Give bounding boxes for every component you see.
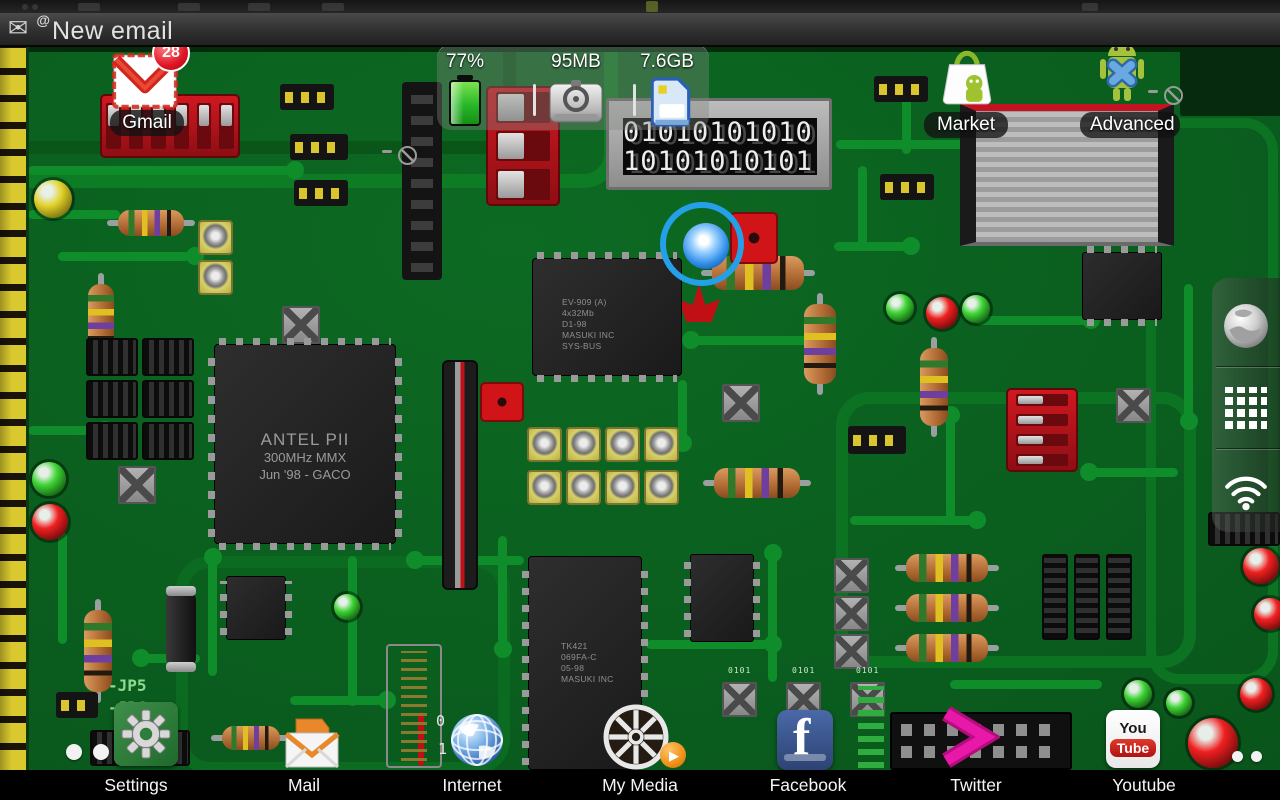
battery-percent: 77% — [437, 51, 493, 73]
led — [886, 294, 914, 322]
power-orb-widget[interactable] — [660, 202, 744, 286]
via-pad — [1180, 412, 1198, 430]
led — [32, 504, 68, 540]
led — [1243, 548, 1279, 584]
capacitor — [566, 470, 601, 505]
youtube-app-icon[interactable]: You Tube — [1106, 710, 1160, 768]
notification-text: New email — [52, 17, 173, 46]
gold-edge-connector — [0, 47, 29, 770]
dock-item-my-media[interactable]: My Media — [556, 775, 724, 796]
smd-chip — [1116, 388, 1151, 423]
status-icon — [322, 3, 344, 11]
facebook-tile: f — [777, 710, 833, 770]
dock-item-facebook[interactable]: Facebook — [724, 775, 892, 796]
switch-label-0: 0 — [436, 712, 445, 730]
finger-pads — [858, 686, 884, 768]
fuse — [166, 590, 196, 668]
circuit-trace — [1086, 468, 1178, 477]
wifi-button[interactable] — [1212, 458, 1280, 526]
facebook-underline — [784, 754, 826, 761]
browser-globe-button[interactable] — [1212, 292, 1280, 360]
youtube-you-text: You — [1119, 721, 1146, 737]
socket — [86, 338, 138, 376]
socket — [1074, 554, 1100, 640]
page-indicator-dot — [1232, 751, 1243, 762]
envelope-icon: ✉ — [8, 15, 28, 42]
silkscreen-binary: 0101 — [728, 666, 751, 675]
led — [1166, 690, 1192, 716]
wifi-icon — [1223, 472, 1269, 512]
gmail-label[interactable]: Gmail — [110, 110, 184, 136]
via-pad — [132, 649, 150, 667]
dock-label: Mail — [288, 775, 320, 795]
dock-item-settings[interactable]: Settings — [52, 775, 220, 796]
film-reel-icon — [603, 704, 669, 770]
capacitor — [605, 427, 640, 462]
separator — [533, 84, 536, 116]
jumper-block — [280, 84, 334, 110]
status-icon — [78, 3, 100, 11]
market-icon — [936, 42, 998, 108]
led — [1254, 598, 1280, 630]
via-pad — [902, 237, 920, 255]
twitter-app-icon[interactable] — [934, 706, 1000, 773]
via-pad — [406, 551, 424, 569]
led — [34, 180, 72, 218]
android-home-screen: ✉ @ New email ANTEL PII 300MHz MMX Jun '… — [0, 0, 1280, 800]
slider-component — [442, 360, 478, 590]
capacitor — [527, 427, 562, 462]
power-orb — [683, 223, 729, 269]
divider — [1216, 448, 1280, 450]
divider — [1216, 366, 1280, 368]
facebook-app-icon[interactable]: f — [777, 710, 833, 770]
circuit-trace — [678, 380, 687, 438]
dip-switch — [1006, 388, 1078, 472]
internet-app-icon[interactable] — [449, 712, 505, 773]
capacitor — [527, 470, 562, 505]
dock-label: My Media — [602, 775, 678, 795]
jumper-block — [294, 180, 348, 206]
circuit-trace — [348, 556, 357, 706]
smd-chip — [834, 634, 869, 669]
advanced-task-label[interactable]: Advanced Tas — [1080, 112, 1180, 138]
ram-chip: EV-909 (A) 4x32Mb D1-98 MASUKI INC SYS-B… — [532, 258, 682, 376]
via-pad — [764, 544, 782, 562]
led — [962, 295, 990, 323]
circuit-trace — [768, 550, 777, 682]
resistor — [920, 348, 948, 426]
dock-label: Twitter — [950, 775, 1002, 795]
at-symbol: @ — [36, 13, 50, 28]
capacitor — [566, 427, 601, 462]
mail-envelope-icon — [282, 716, 342, 770]
dock-item-twitter[interactable]: Twitter — [892, 775, 1060, 796]
switch-label-1: 1 — [438, 740, 447, 758]
circuit-trace — [208, 554, 217, 676]
dock-item-youtube[interactable]: Youtube — [1060, 775, 1228, 796]
status-icon — [178, 3, 200, 11]
memory-free: 95MB — [535, 51, 617, 73]
globe-icon — [1223, 303, 1269, 349]
dock-item-mail[interactable]: Mail — [220, 775, 388, 796]
smd-chip — [722, 384, 760, 422]
socket — [1042, 554, 1068, 640]
jumper-block — [880, 174, 934, 200]
via-pad — [286, 161, 304, 179]
storage-free: 7.6GB — [625, 51, 709, 73]
jumper-block — [848, 426, 906, 454]
new-email-icon: ✉ @ — [8, 15, 48, 45]
resistor — [906, 554, 988, 582]
resistor — [804, 304, 836, 384]
page-indicator-dot — [93, 744, 109, 760]
socket — [86, 380, 138, 418]
top-system-strip — [0, 0, 1280, 13]
ram-chip-text: EV-909 (A) 4x32Mb D1-98 MASUKI INC SYS-B… — [562, 297, 615, 352]
via-pad — [764, 635, 782, 653]
status-icon — [1082, 3, 1098, 11]
battery-icon — [449, 80, 481, 126]
via-pad — [494, 640, 512, 658]
market-app-icon[interactable] — [936, 42, 998, 113]
silkscreen-binary: 0101 — [856, 666, 879, 675]
jumper-block — [290, 134, 348, 160]
circuit-trace — [58, 252, 190, 261]
circuit-trace — [946, 412, 955, 524]
silkscreen-binary: 0101 — [792, 666, 815, 675]
dock-label: Youtube — [1112, 775, 1176, 795]
circuit-trace — [28, 166, 290, 175]
jumper-block — [56, 692, 98, 718]
circuit-trace — [58, 532, 67, 644]
via-pad — [204, 548, 222, 566]
tk421-chip-text: TK421 069FA-C 05-98 MASUKI INC — [561, 641, 614, 685]
circuit-trace — [290, 696, 382, 705]
status-icon — [32, 4, 38, 10]
capacitor — [198, 220, 233, 255]
page-indicator-dot — [66, 744, 82, 760]
notification-bar[interactable]: ✉ @ New email — [0, 13, 1280, 47]
capacitor — [644, 470, 679, 505]
via-pad — [968, 511, 986, 529]
dock-item-internet[interactable]: Internet — [388, 775, 556, 796]
zipper-component — [386, 644, 442, 768]
advanced-task-app-icon[interactable] — [1090, 36, 1154, 113]
page-indicator-dot — [1251, 751, 1262, 762]
socket — [142, 338, 194, 376]
sdcard-icon — [651, 77, 693, 127]
led — [1188, 718, 1238, 768]
led — [32, 462, 66, 496]
socket — [86, 422, 138, 460]
led — [1240, 678, 1272, 710]
ic-chip — [690, 554, 754, 642]
capacitor — [644, 427, 679, 462]
internet-globe-icon — [449, 712, 505, 768]
screw-mark — [1164, 86, 1183, 105]
led — [1124, 680, 1152, 708]
ic-chip — [226, 576, 286, 640]
pink-arrow-icon — [934, 706, 1000, 768]
circuit-trace — [950, 680, 1102, 689]
screw-mark — [398, 146, 417, 165]
red-component — [678, 284, 720, 322]
via-pad — [682, 331, 700, 349]
cpu-chip: ANTEL PII 300MHz MMX Jun '98 - GACO — [214, 344, 396, 544]
play-badge-icon: ▶ — [660, 742, 686, 768]
socket — [1106, 554, 1132, 640]
circuit-trace — [498, 536, 507, 644]
led — [926, 297, 958, 329]
via-pad — [1080, 463, 1098, 481]
circuit-trace — [858, 166, 867, 248]
smd-chip — [834, 596, 869, 631]
jumper-label-jp5: -JP5 — [108, 676, 147, 695]
ic-chip — [1082, 252, 1162, 320]
memory-icon — [547, 78, 605, 126]
mail-app-icon[interactable] — [282, 716, 342, 775]
resistor — [906, 594, 988, 622]
youtube-tube-text: Tube — [1110, 739, 1156, 757]
resistor — [118, 210, 184, 236]
status-icon — [248, 3, 270, 11]
capacitor — [605, 470, 640, 505]
smd-chip — [722, 682, 757, 717]
status-icon — [646, 1, 658, 12]
separator — [633, 84, 636, 116]
circuit-trace — [976, 316, 1086, 325]
dock-label: Facebook — [770, 775, 847, 795]
dock-bar: Settings Mail Internet My Media Facebook… — [0, 770, 1280, 800]
red-component — [480, 382, 524, 422]
app-drawer-button[interactable] — [1212, 374, 1280, 442]
dock-label: Internet — [442, 775, 501, 795]
settings-app-icon[interactable] — [114, 702, 178, 766]
my-media-app-icon[interactable]: ▶ — [603, 704, 669, 775]
board-region — [382, 150, 392, 153]
resistor — [222, 726, 280, 750]
circuit-trace — [1184, 284, 1193, 416]
resistor — [906, 634, 988, 662]
dock-label: Settings — [104, 775, 167, 795]
settings-tile — [114, 702, 178, 766]
circuit-trace — [688, 336, 810, 345]
circuit-trace — [836, 140, 966, 149]
smd-chip — [118, 466, 156, 504]
led — [334, 594, 360, 620]
resistor — [714, 468, 800, 498]
capacitor — [198, 260, 233, 295]
quick-launch-sidebar — [1212, 278, 1280, 532]
youtube-tile: You Tube — [1106, 710, 1160, 768]
socket — [142, 380, 194, 418]
market-label[interactable]: Market — [924, 112, 1008, 138]
jumper-block — [874, 76, 928, 102]
status-icon — [22, 4, 28, 10]
apps-grid-icon — [1225, 387, 1267, 429]
smd-chip — [834, 558, 869, 593]
socket — [142, 422, 194, 460]
circuit-trace — [834, 242, 906, 251]
system-status-widget[interactable]: 77% 95MB 7.6GB — [437, 44, 709, 130]
cpu-chip-text: ANTEL PII 300MHz MMX Jun '98 - GACO — [215, 429, 395, 483]
gear-icon — [121, 709, 171, 759]
hole-strip — [402, 82, 442, 280]
